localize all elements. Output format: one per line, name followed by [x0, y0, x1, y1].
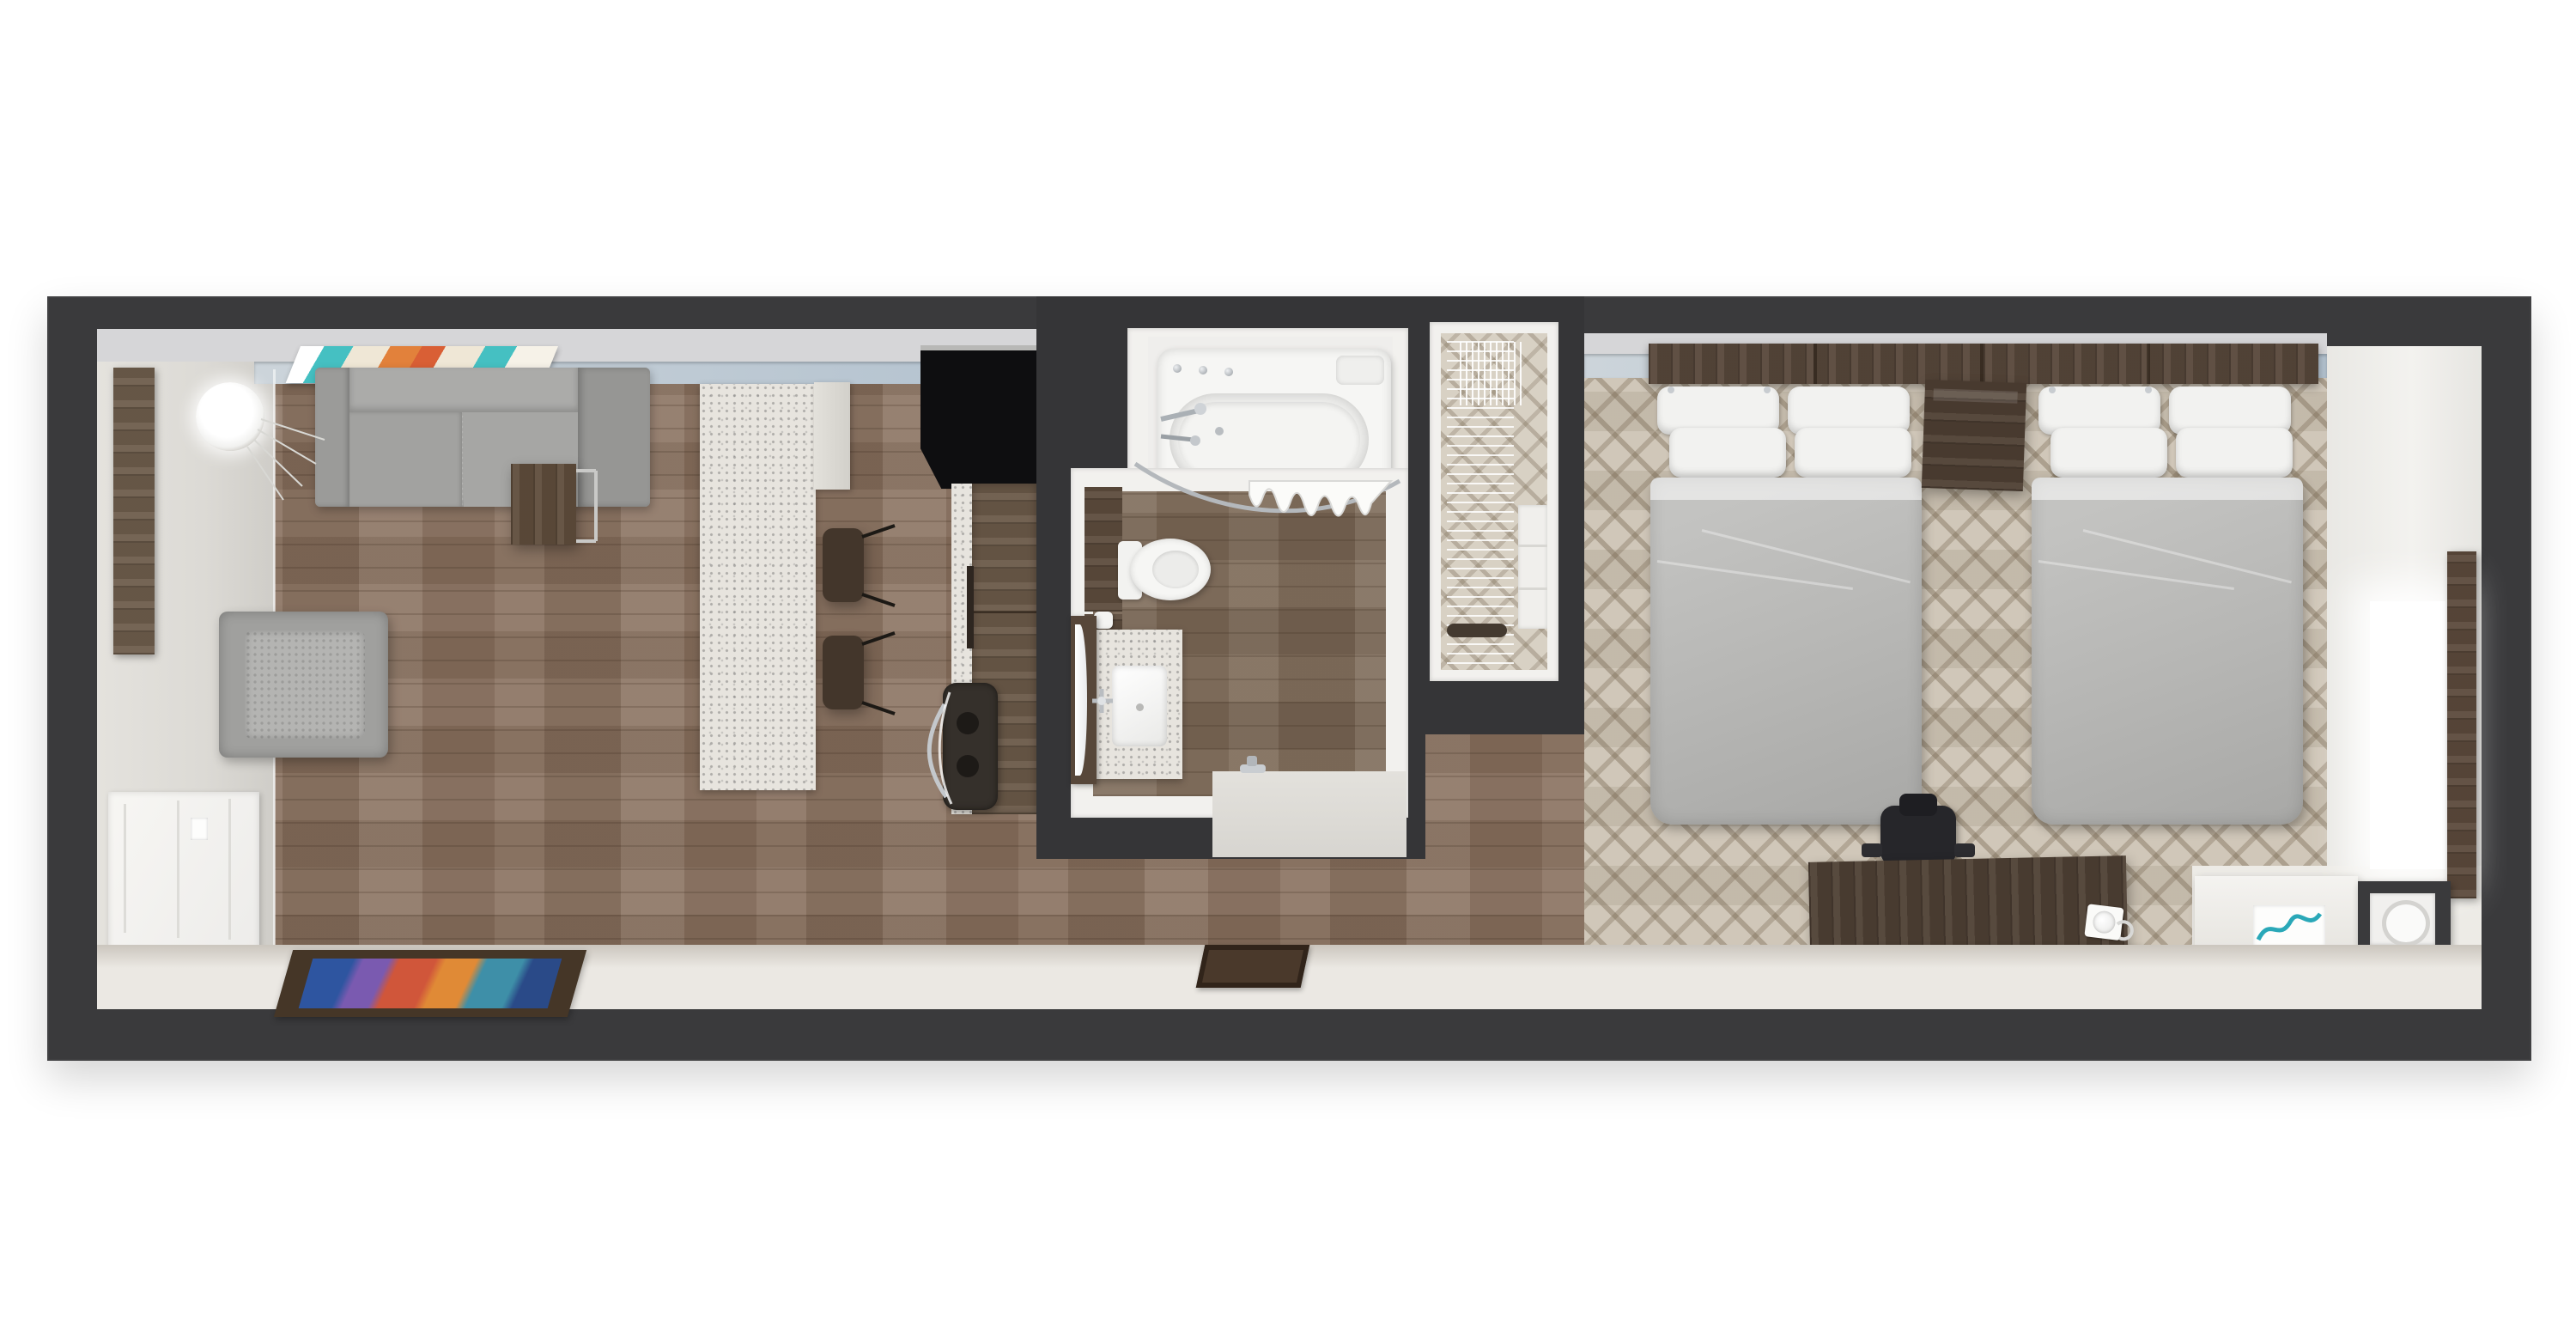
pendant-sparkle-lines	[247, 419, 325, 500]
stool-legs	[862, 526, 895, 714]
headboard-hooks	[1668, 387, 2152, 393]
detail-overlay	[0, 0, 2576, 1321]
vanity-faucet	[1092, 689, 1113, 713]
bathroom-door-handle	[1240, 756, 1266, 773]
side-table-legs	[576, 471, 596, 541]
floorplan-render	[0, 0, 2576, 1321]
cup-handle	[2117, 922, 2132, 939]
tub-faucet	[1161, 403, 1224, 446]
